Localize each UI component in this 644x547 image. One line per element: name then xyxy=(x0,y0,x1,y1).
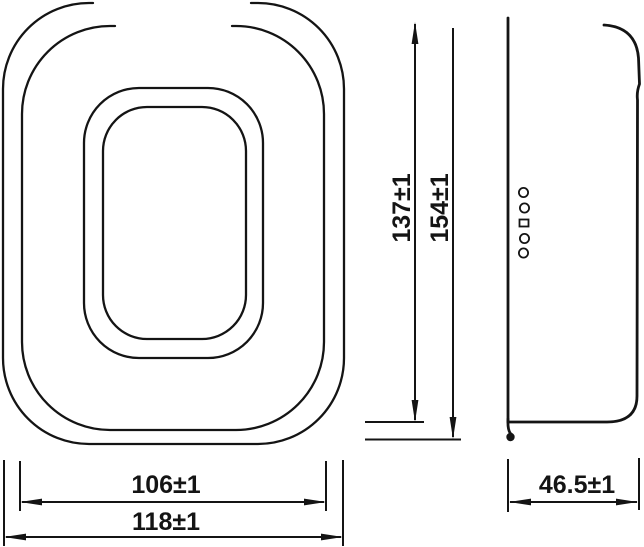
dim-inner-height: 137±1 xyxy=(365,22,424,422)
dim-inner-width: 106±1 xyxy=(20,461,326,511)
dim-inner-height-label: 137±1 xyxy=(388,173,416,242)
dim-inner-height-arrow-down xyxy=(412,400,419,422)
dimension-drawing: 137±1 154±1 106±1 118±1 xyxy=(0,0,644,547)
drawing-svg: 137±1 154±1 106±1 118±1 xyxy=(0,0,644,547)
side-view xyxy=(506,18,639,441)
dim-outer-width-arrow-right xyxy=(321,534,343,541)
side-bottom-bead xyxy=(506,433,514,441)
dim-depth: 46.5±1 xyxy=(508,458,639,512)
dim-depth-label: 46.5±1 xyxy=(539,471,615,499)
dim-inner-width-label: 106±1 xyxy=(131,471,200,499)
front-outer-contour xyxy=(3,3,344,444)
dim-outer-width-label: 118±1 xyxy=(132,508,200,536)
front-view xyxy=(3,3,344,444)
fastener-circle-1 xyxy=(519,188,528,197)
dim-outer-height-arrow-down xyxy=(450,417,457,439)
dim-inner-width-arrow-left xyxy=(20,499,42,506)
dim-depth-arrow-left xyxy=(509,499,531,506)
dim-inner-height-arrow-up xyxy=(412,22,419,44)
fastener-circle-2 xyxy=(520,203,529,212)
fastener-circle-3 xyxy=(520,234,529,243)
dim-outer-height-label: 154±1 xyxy=(426,173,454,242)
dim-inner-width-arrow-right xyxy=(304,499,326,506)
dim-depth-arrow-right xyxy=(616,499,638,506)
side-fastener-symbols xyxy=(519,188,529,258)
front-ring-outer-contour xyxy=(84,88,263,358)
fastener-square xyxy=(520,220,529,227)
dim-outer-width-arrow-left xyxy=(4,534,26,541)
front-ring-inner-contour xyxy=(103,107,246,339)
front-mid-contour xyxy=(22,26,324,430)
fastener-circle-4 xyxy=(519,248,528,257)
